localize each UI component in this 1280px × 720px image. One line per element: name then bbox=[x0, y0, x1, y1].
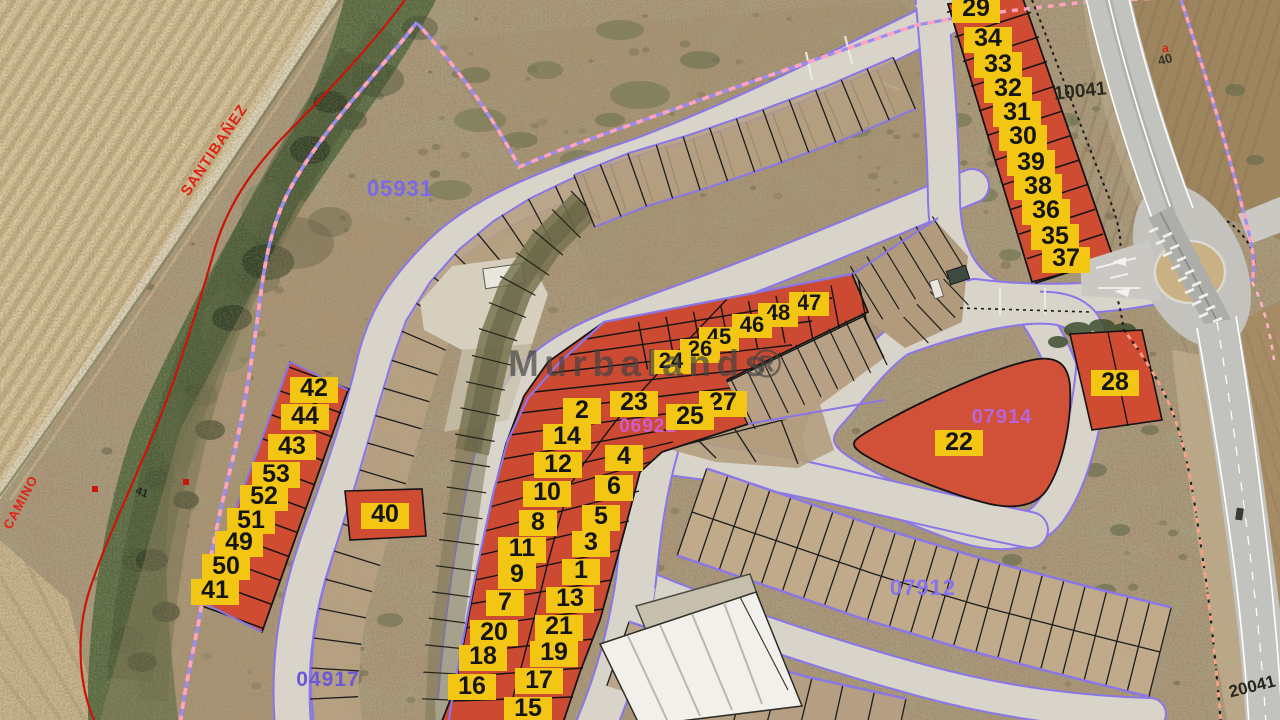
svg-text:®: ® bbox=[752, 342, 781, 386]
svg-text:41: 41 bbox=[201, 576, 229, 604]
svg-text:29: 29 bbox=[962, 0, 990, 22]
svg-text:5: 5 bbox=[594, 502, 608, 530]
svg-text:22: 22 bbox=[945, 428, 973, 456]
svg-text:10: 10 bbox=[533, 478, 561, 506]
svg-text:23: 23 bbox=[620, 388, 648, 416]
svg-text:47: 47 bbox=[797, 290, 821, 315]
svg-text:14: 14 bbox=[553, 422, 581, 450]
svg-text:28: 28 bbox=[1101, 368, 1129, 396]
svg-text:25: 25 bbox=[676, 402, 704, 430]
svg-text:6: 6 bbox=[607, 472, 621, 500]
svg-text:40: 40 bbox=[371, 500, 399, 528]
svg-text:34: 34 bbox=[974, 24, 1002, 52]
svg-text:21: 21 bbox=[545, 612, 573, 640]
svg-text:44: 44 bbox=[291, 402, 319, 430]
svg-text:15: 15 bbox=[514, 694, 542, 720]
svg-text:Murbalands: Murbalands bbox=[508, 343, 771, 384]
svg-text:7: 7 bbox=[498, 588, 512, 616]
svg-text:05931: 05931 bbox=[367, 176, 433, 201]
svg-text:19: 19 bbox=[540, 638, 568, 666]
svg-text:9: 9 bbox=[510, 560, 524, 588]
svg-text:37: 37 bbox=[1052, 244, 1080, 272]
svg-text:2: 2 bbox=[575, 396, 589, 424]
svg-text:30: 30 bbox=[1009, 122, 1037, 150]
svg-text:18: 18 bbox=[469, 642, 497, 670]
svg-text:42: 42 bbox=[300, 374, 328, 402]
svg-text:17: 17 bbox=[525, 666, 553, 694]
svg-text:07912: 07912 bbox=[890, 575, 956, 600]
svg-text:43: 43 bbox=[278, 432, 306, 460]
svg-text:46: 46 bbox=[740, 312, 764, 337]
svg-text:16: 16 bbox=[458, 672, 486, 700]
svg-text:11: 11 bbox=[509, 534, 536, 562]
svg-text:1: 1 bbox=[574, 556, 588, 584]
svg-text:12: 12 bbox=[544, 450, 572, 478]
svg-text:8: 8 bbox=[531, 508, 545, 536]
svg-text:13: 13 bbox=[556, 584, 584, 612]
svg-text:04917: 04917 bbox=[296, 668, 359, 691]
svg-text:07914: 07914 bbox=[972, 406, 1033, 428]
svg-text:36: 36 bbox=[1032, 196, 1060, 224]
svg-text:3: 3 bbox=[584, 528, 598, 556]
svg-text:4: 4 bbox=[617, 442, 631, 470]
